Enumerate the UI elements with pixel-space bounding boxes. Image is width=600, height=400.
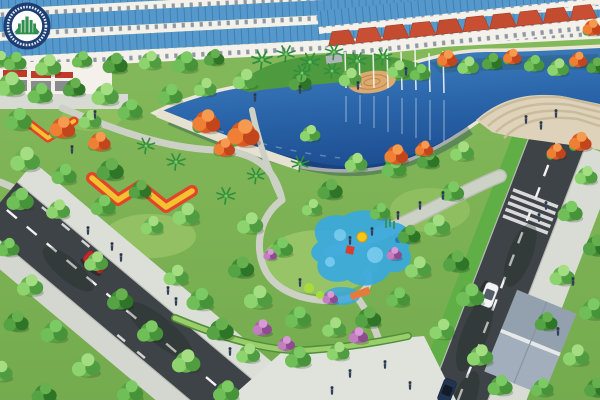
- watermark-logo: [4, 3, 51, 50]
- aerial-park-render: Aerial 3D rendering of a residential tow…: [0, 0, 600, 400]
- umbrella: [357, 232, 367, 242]
- render-image: Aerial 3D rendering of a residential tow…: [0, 0, 600, 400]
